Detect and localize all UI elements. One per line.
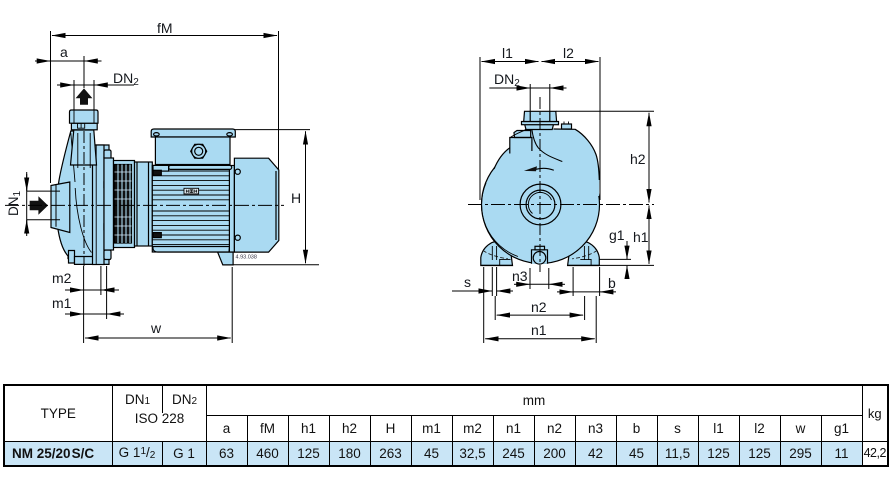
svg-text:m2: m2 [52, 270, 72, 286]
svg-text:g1: g1 [609, 227, 625, 243]
svg-text:n2: n2 [531, 299, 547, 315]
svg-text:DN1: DN1 [6, 191, 23, 217]
svg-text:b: b [608, 275, 616, 291]
svg-text:a: a [60, 44, 68, 60]
svg-text:DN2: DN2 [494, 71, 520, 89]
svg-text:w: w [150, 320, 162, 336]
svg-text:l1: l1 [502, 45, 513, 61]
svg-text:h1: h1 [633, 229, 649, 245]
svg-text:H: H [291, 190, 301, 206]
svg-text:DN2: DN2 [113, 70, 139, 88]
svg-text:fM: fM [157, 20, 173, 36]
svg-text:4.93.038: 4.93.038 [236, 255, 257, 261]
svg-text:l2: l2 [563, 45, 574, 61]
svg-text:m1: m1 [52, 295, 72, 311]
svg-text:n1: n1 [531, 322, 547, 338]
svg-text:s: s [464, 274, 471, 290]
svg-text:h2: h2 [630, 151, 646, 167]
svg-text:n3: n3 [512, 268, 528, 284]
